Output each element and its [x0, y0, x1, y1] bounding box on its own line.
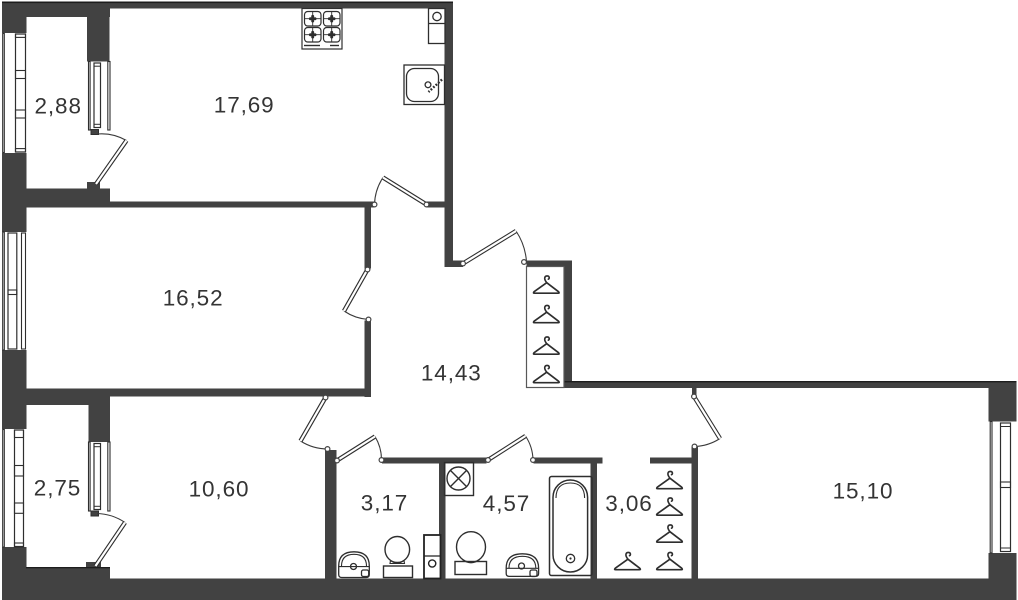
- svg-text:10,60: 10,60: [189, 477, 250, 502]
- svg-text:2,88: 2,88: [34, 93, 81, 118]
- svg-text:3,06: 3,06: [605, 491, 652, 516]
- svg-text:3,17: 3,17: [361, 491, 408, 516]
- svg-text:16,52: 16,52: [163, 285, 224, 310]
- svg-text:2,75: 2,75: [34, 476, 81, 501]
- svg-text:14,43: 14,43: [421, 361, 482, 386]
- svg-text:17,69: 17,69: [214, 93, 275, 118]
- svg-text:4,57: 4,57: [483, 491, 530, 516]
- svg-text:15,10: 15,10: [833, 478, 894, 503]
